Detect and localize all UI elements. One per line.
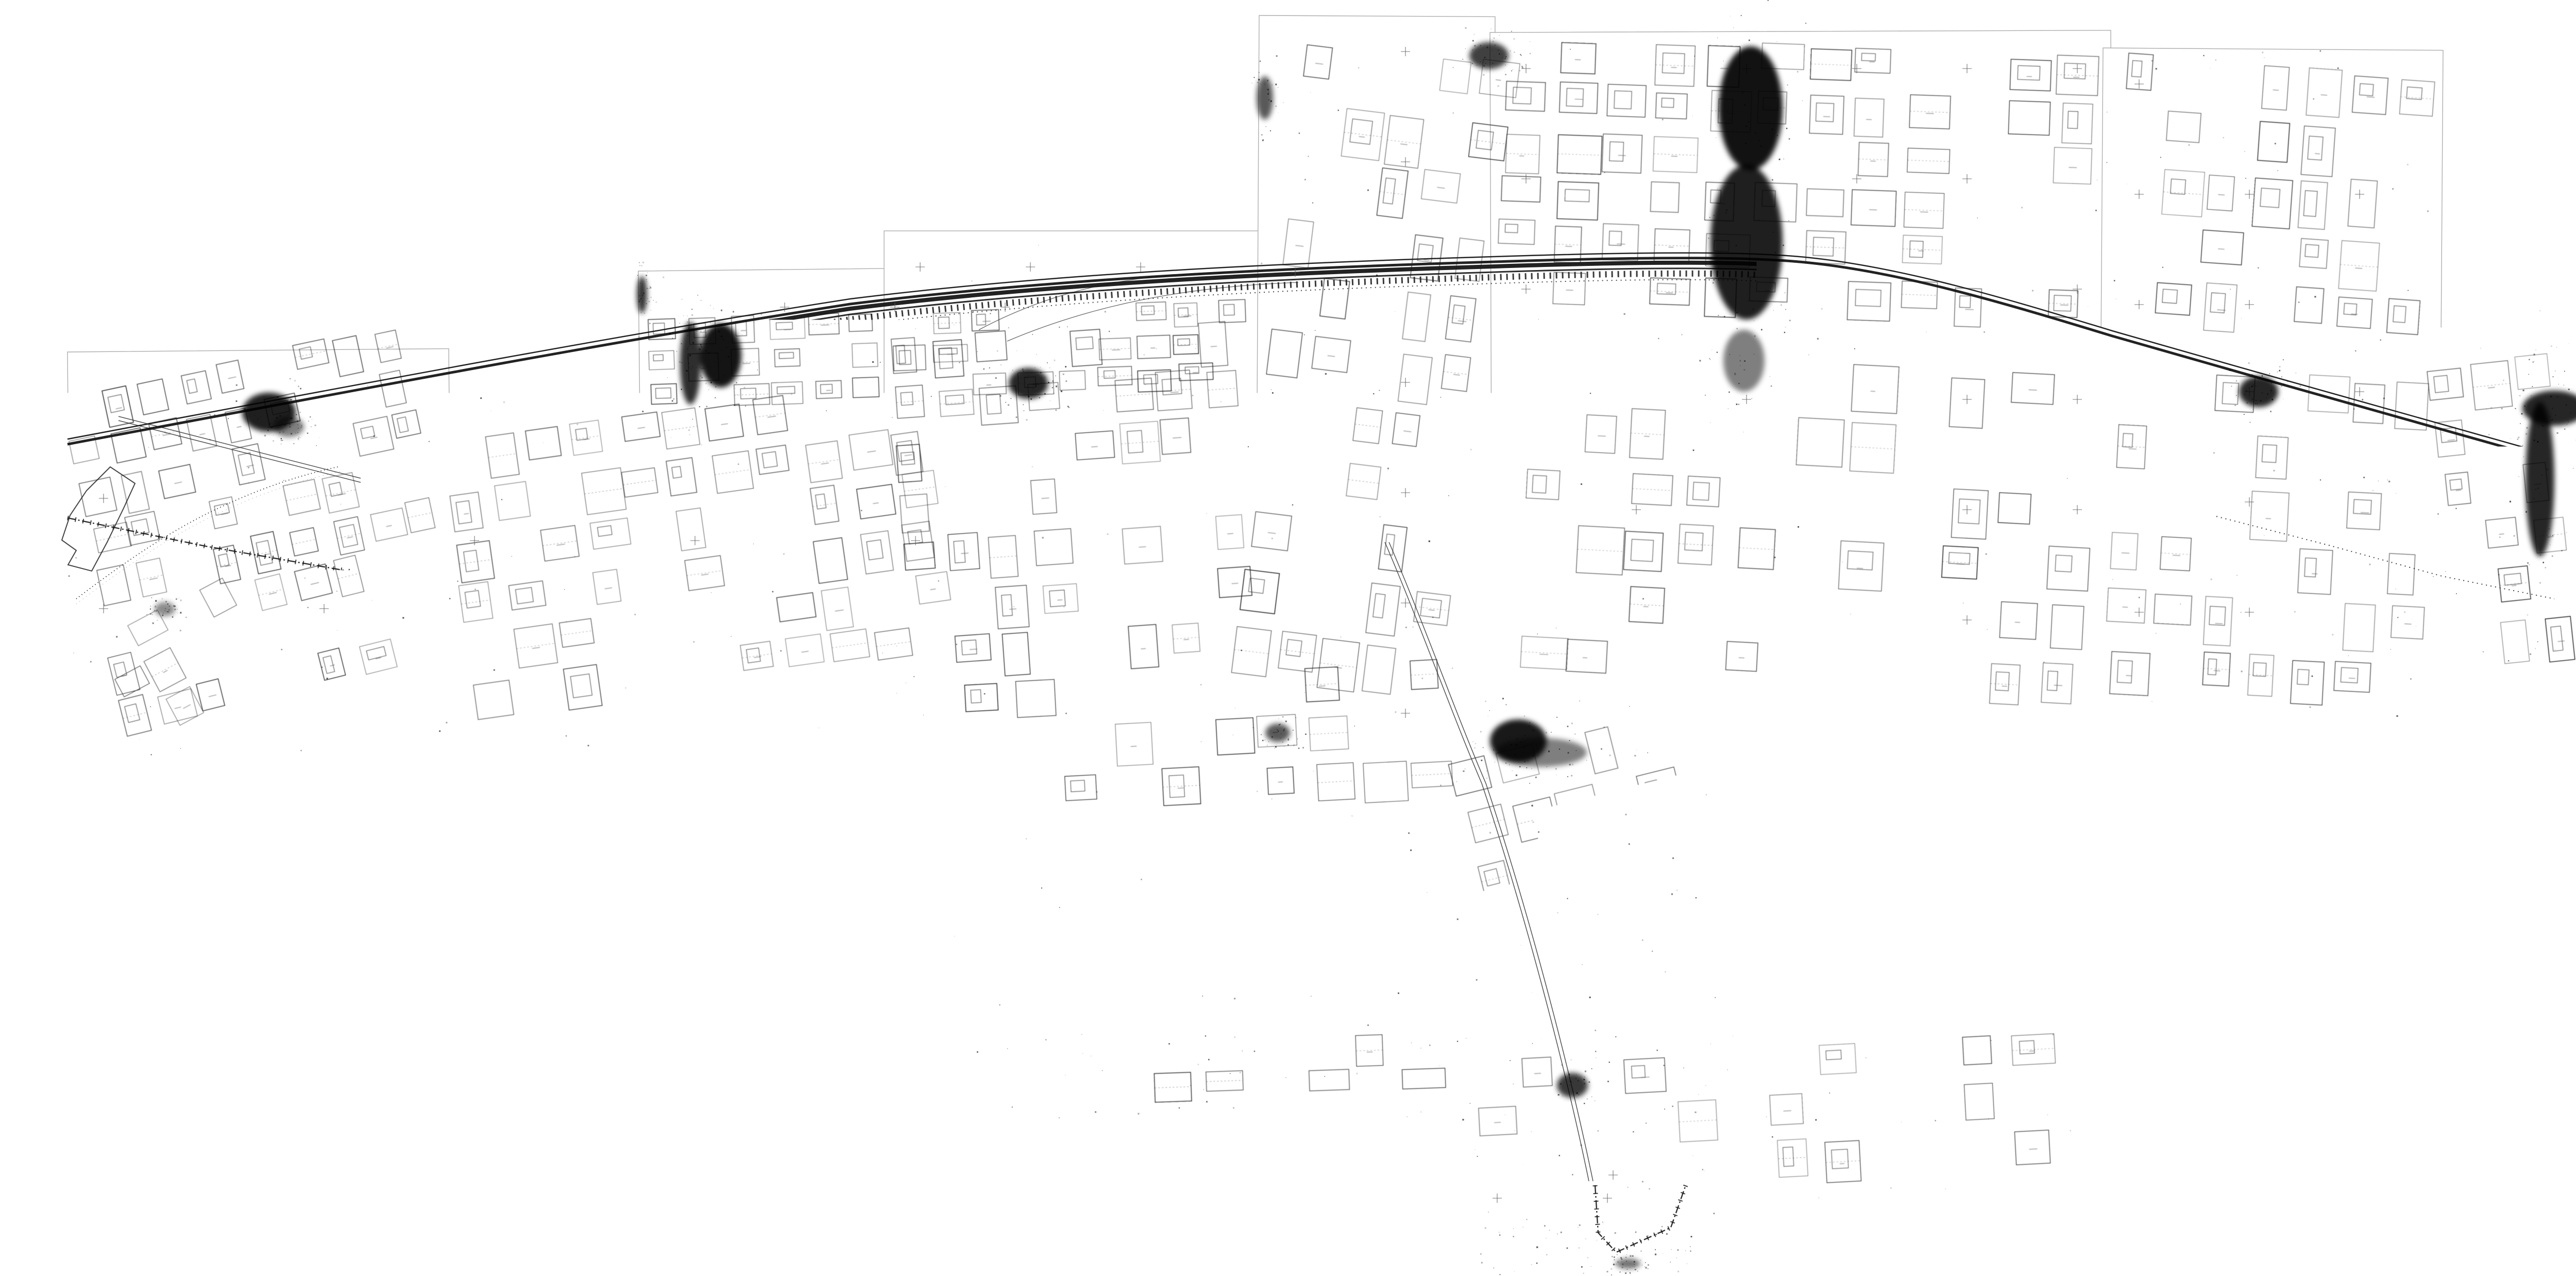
map-sheet xyxy=(1467,1029,2076,1221)
map-sheet xyxy=(2101,48,2443,365)
map-sheet xyxy=(996,1031,1470,1118)
cadastral-map-canvas xyxy=(0,0,2576,1276)
map-sheet xyxy=(437,394,956,757)
map-sheet xyxy=(1490,30,2113,728)
drawing-reference-note: Αρ.Φ.Δ. 130/95 Αρ.Σχ. 27 xyxy=(411,725,462,744)
scan-sheet-tiles xyxy=(67,15,2576,1275)
map-sheet xyxy=(952,663,1468,1084)
map-sheet xyxy=(1256,15,1495,751)
file-number: Αρ.Φ.Δ. 130/95 xyxy=(411,725,463,735)
scanned-map-page: ΛΕΩΦΟΡΟΣΠΡΑΣΙΝΟΚΕΜΟΤ. 2238ΓΟΤ 2238ΕΜΠΡΑΣ… xyxy=(0,0,2576,1276)
